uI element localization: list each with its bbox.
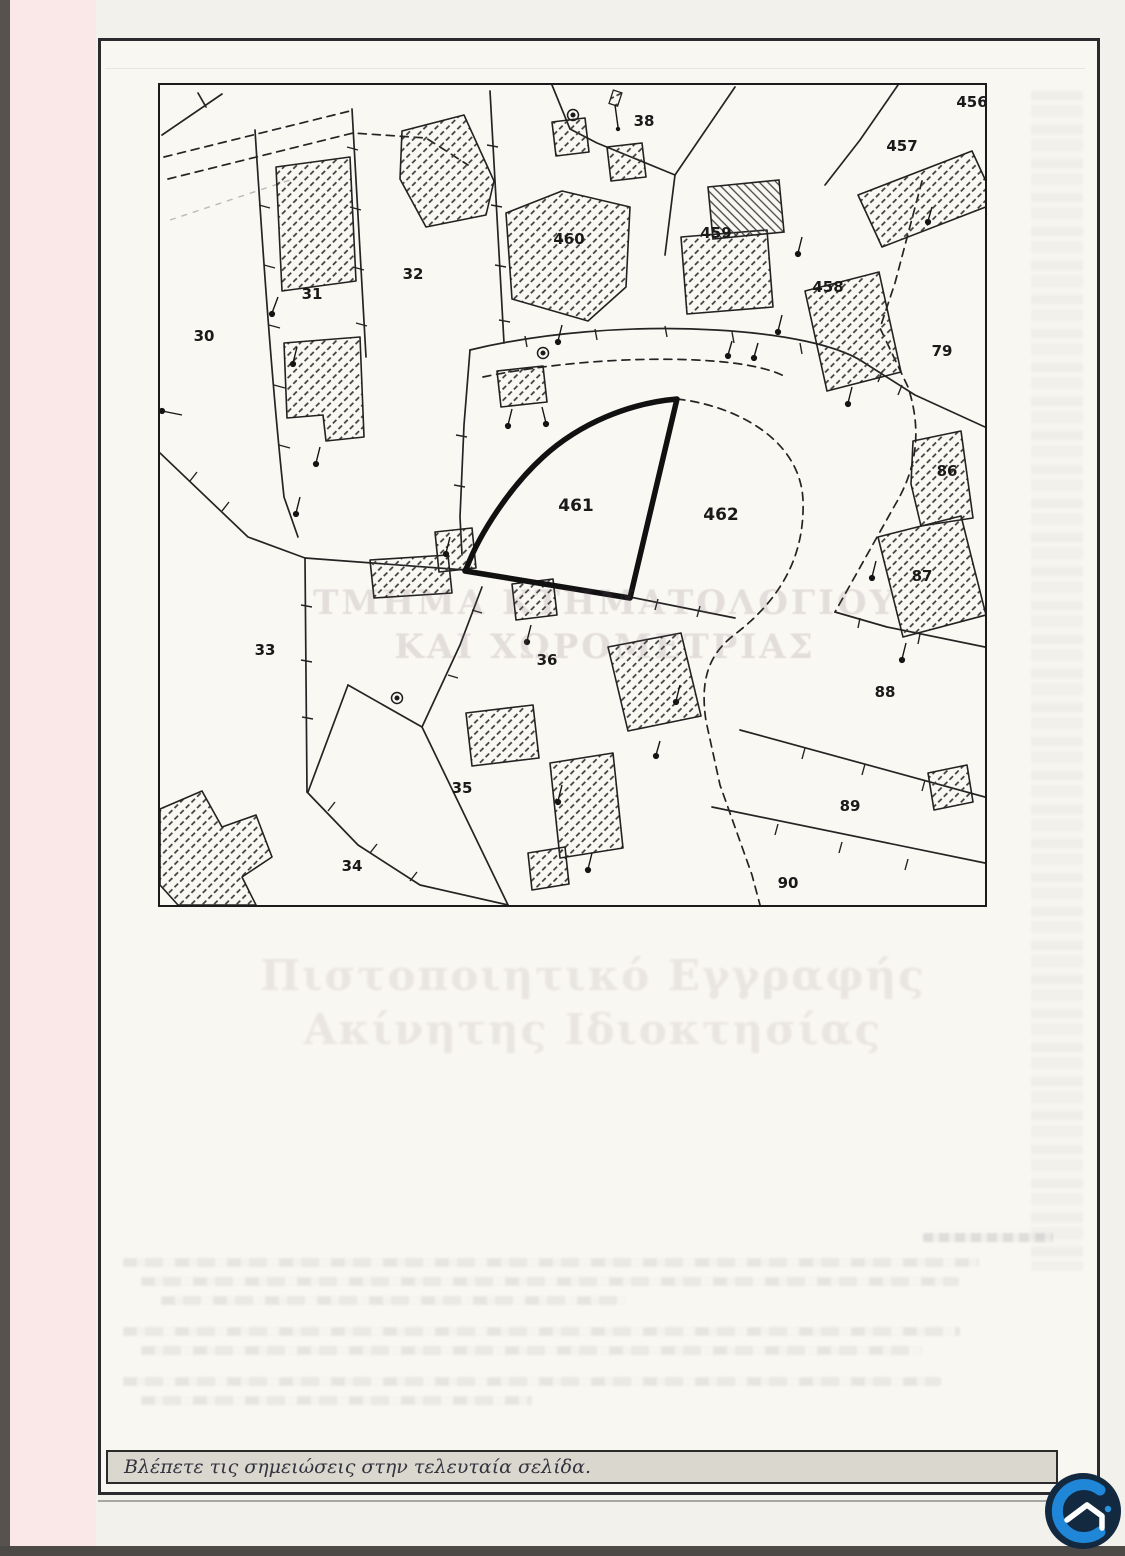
faint-path bbox=[170, 180, 290, 220]
flag-symbol bbox=[609, 90, 622, 131]
faded-note-line bbox=[141, 1346, 922, 1355]
faded-note-line bbox=[123, 1377, 941, 1386]
parcel-label-86: 86 bbox=[937, 462, 958, 480]
parcel-label-88: 88 bbox=[875, 683, 896, 701]
parcel-label-38: 38 bbox=[634, 112, 655, 130]
faded-note-line bbox=[141, 1277, 959, 1286]
parcel-label-32: 32 bbox=[403, 265, 424, 283]
parcel-label-458: 458 bbox=[812, 278, 843, 296]
site-logo[interactable] bbox=[1044, 1472, 1122, 1550]
footer-note-bar: Βλέπετε τις σημειώσεις στην τελευταία σε… bbox=[106, 1450, 1058, 1484]
parcel-label-90: 90 bbox=[778, 874, 799, 892]
scan-artifact-line bbox=[105, 68, 1085, 69]
scanned-document-page: 3031323334353638456457458459460461462798… bbox=[0, 0, 1125, 1556]
parcel-label-34: 34 bbox=[342, 857, 363, 875]
faded-note-line bbox=[141, 1396, 532, 1405]
cadastral-plan-frame: 3031323334353638456457458459460461462798… bbox=[158, 83, 987, 907]
parcel-label-33: 33 bbox=[255, 641, 276, 659]
parcel-label-30: 30 bbox=[194, 327, 215, 345]
parcel-label-79: 79 bbox=[932, 342, 953, 360]
scan-edge-left bbox=[0, 0, 10, 1556]
parcel-label-36: 36 bbox=[537, 651, 558, 669]
parcel-label-89: 89 bbox=[840, 797, 861, 815]
faded-notes-heading bbox=[923, 1233, 1053, 1242]
logo-accent-dot bbox=[1105, 1506, 1111, 1512]
parcel-label-459: 459 bbox=[700, 224, 731, 242]
faded-note-line bbox=[123, 1258, 979, 1267]
parcel-label-457: 457 bbox=[886, 137, 917, 155]
parcel-label-460: 460 bbox=[553, 230, 584, 248]
scan-bleedthrough-band bbox=[1031, 91, 1083, 1271]
scan-margin-pink bbox=[10, 0, 96, 1546]
parcel-label-456: 456 bbox=[956, 93, 985, 111]
faded-note-line bbox=[123, 1327, 960, 1336]
parcel-label-31: 31 bbox=[302, 285, 323, 303]
cadastral-plan-svg: 3031323334353638456457458459460461462798… bbox=[160, 85, 985, 905]
parcel-label-87: 87 bbox=[912, 567, 933, 585]
stamp-line1: Πιστοποιητικό Εγγραφής bbox=[213, 949, 973, 1003]
cadastral-certificate-document: 3031323334353638456457458459460461462798… bbox=[98, 38, 1100, 1495]
stamp-line2: Ακίνητης Ιδιοκτησίας bbox=[213, 1003, 973, 1057]
faded-notes-block bbox=[123, 1233, 1053, 1463]
footer-note-text: Βλέπετε τις σημειώσεις στην τελευταία σε… bbox=[124, 1456, 591, 1478]
parcel-label-461: 461 bbox=[558, 496, 594, 516]
faded-note-line bbox=[161, 1296, 626, 1305]
faded-certificate-stamp: Πιστοποιητικό Εγγραφής Ακίνητης Ιδιοκτησ… bbox=[213, 949, 973, 1057]
parcel-label-462: 462 bbox=[703, 505, 739, 525]
scan-shadow-line bbox=[98, 1500, 1100, 1502]
parcel-label-35: 35 bbox=[452, 779, 473, 797]
scan-edge-bottom bbox=[0, 1546, 1125, 1556]
